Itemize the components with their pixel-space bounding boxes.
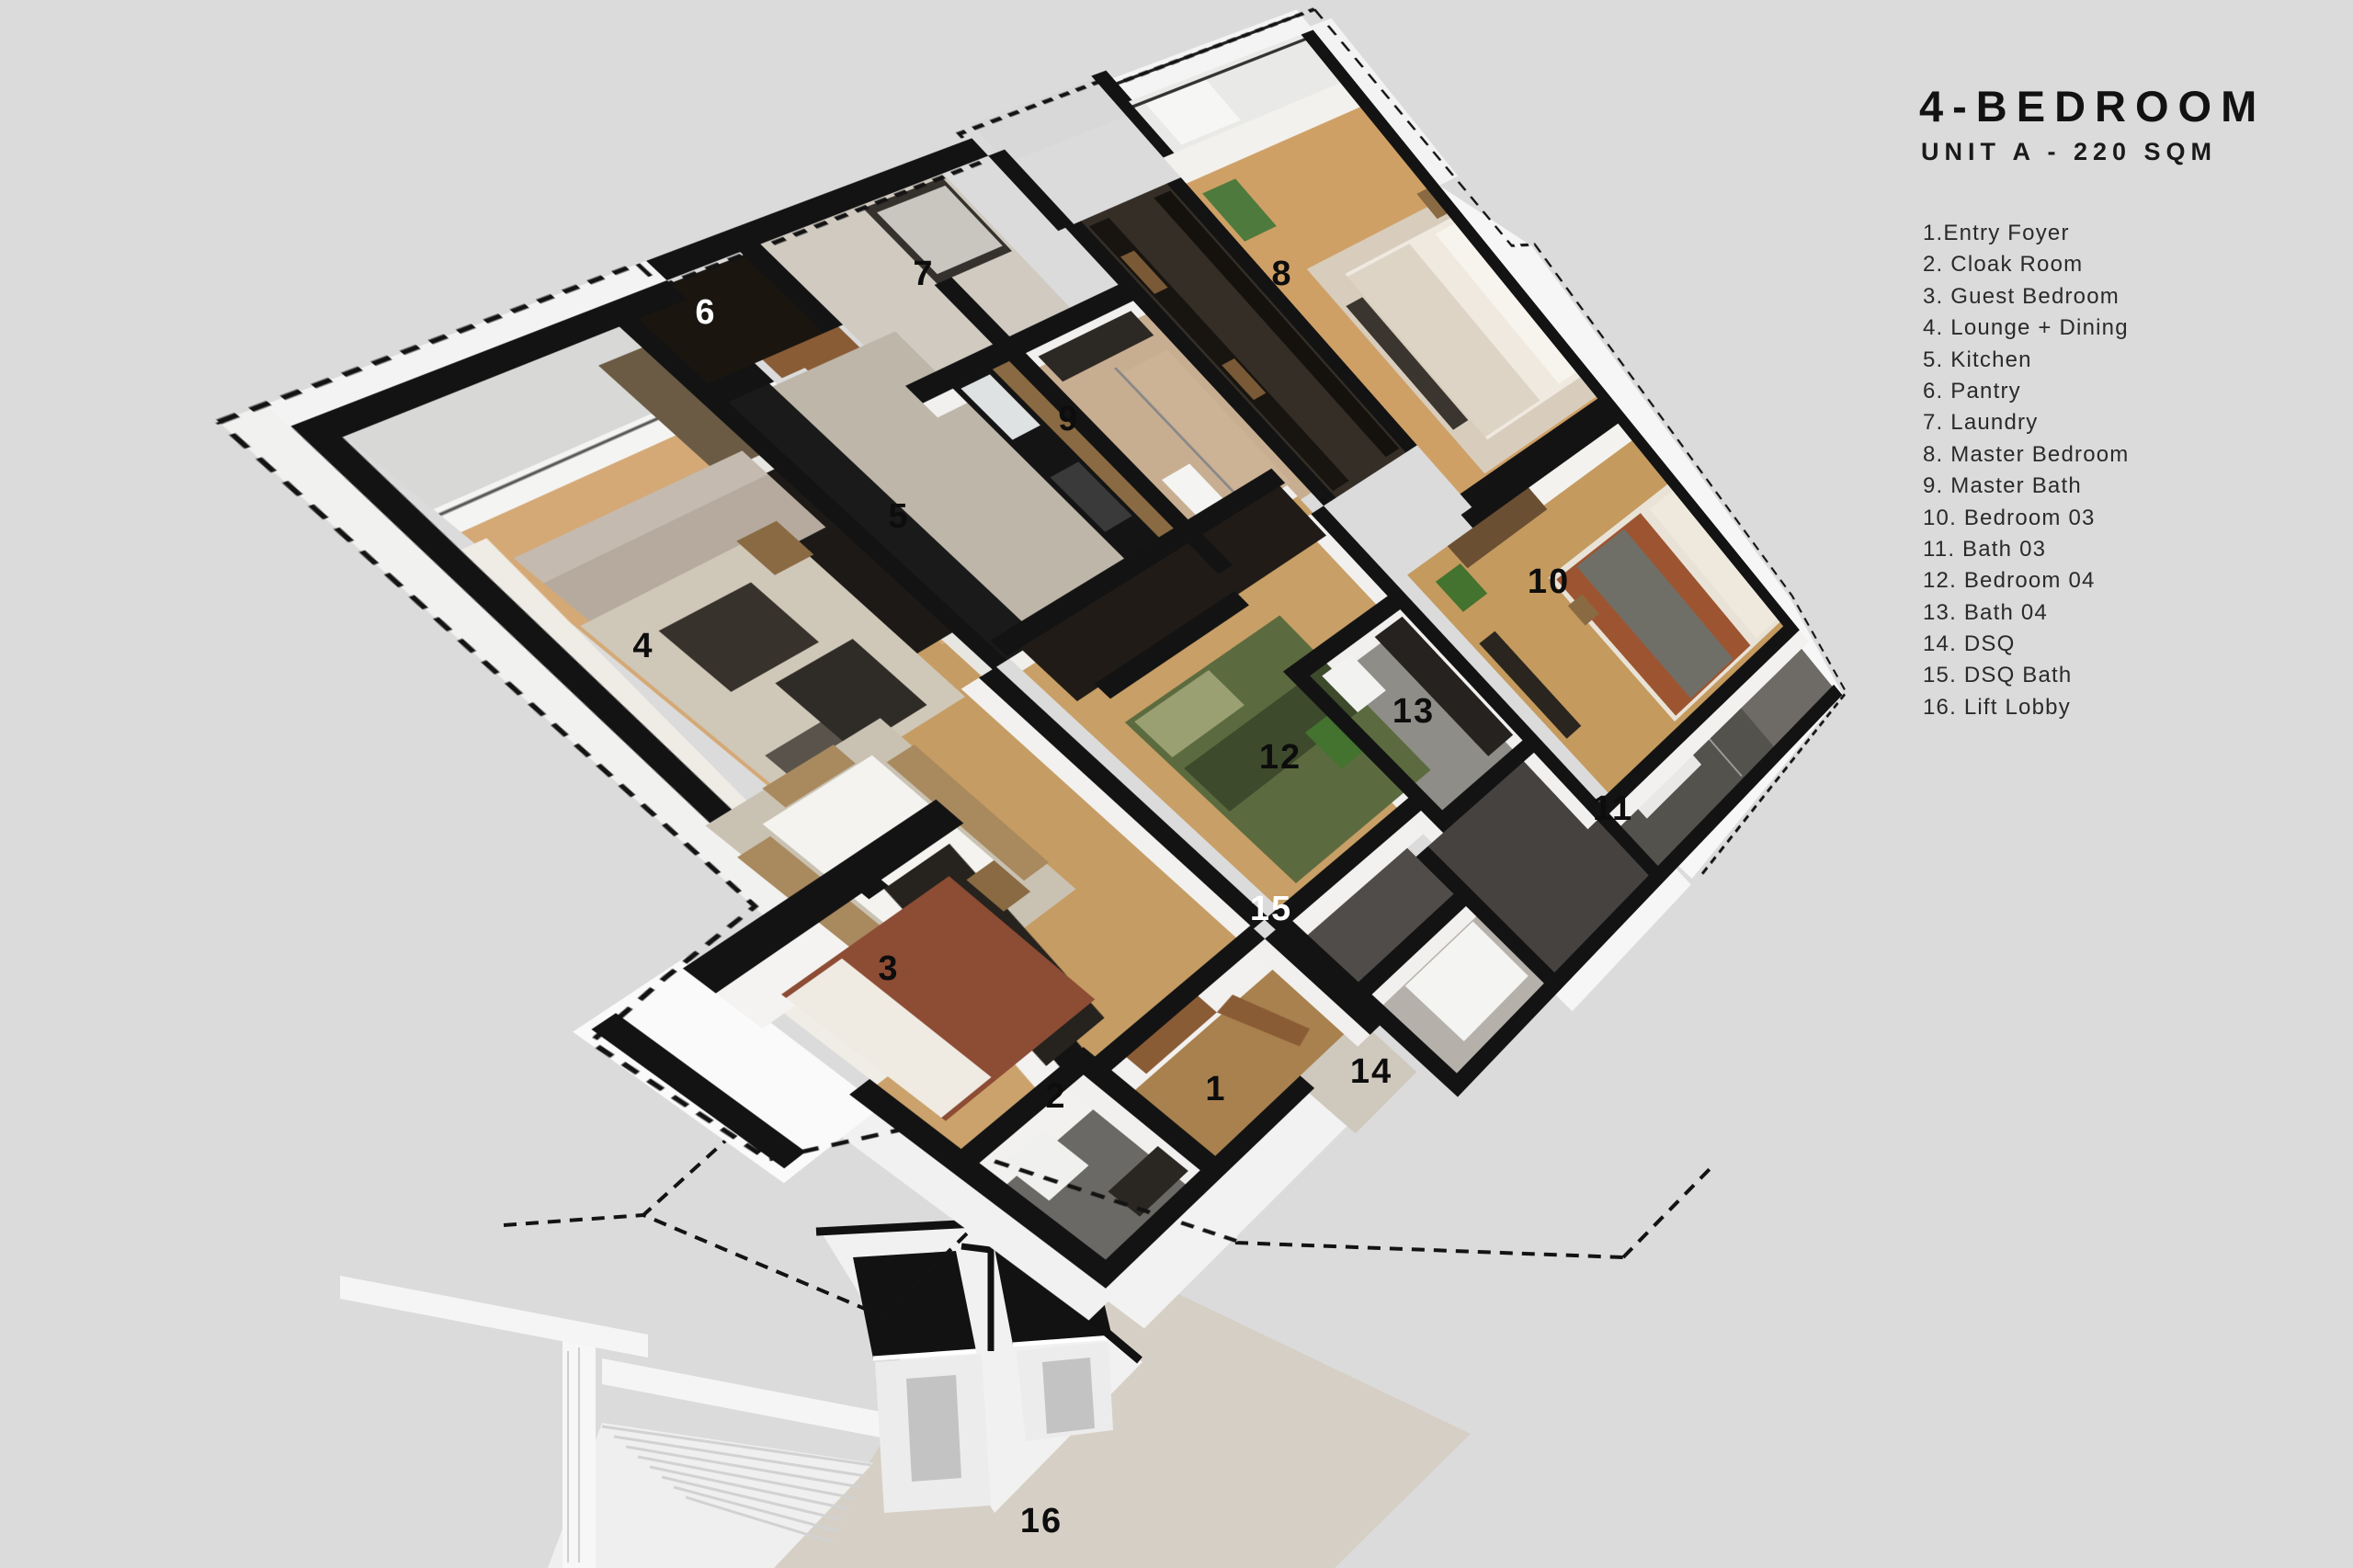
svg-text:2: 2 (1045, 1077, 1066, 1116)
svg-text:11: 11 (1593, 790, 1633, 828)
svg-text:7: 7 (913, 255, 934, 293)
svg-text:6: 6 (695, 293, 716, 332)
svg-text:9: 9 (1058, 400, 1079, 438)
svg-text:15: 15 (1250, 890, 1292, 928)
svg-text:5: 5 (888, 497, 909, 536)
svg-text:8: 8 (1271, 255, 1292, 293)
svg-text:10: 10 (1528, 562, 1570, 601)
svg-text:1: 1 (1205, 1070, 1226, 1108)
svg-text:14: 14 (1350, 1052, 1392, 1091)
svg-text:3: 3 (878, 949, 899, 988)
svg-text:13: 13 (1392, 692, 1435, 731)
svg-text:12: 12 (1259, 738, 1302, 777)
svg-text:16: 16 (1020, 1502, 1063, 1540)
svg-text:4: 4 (632, 627, 654, 665)
